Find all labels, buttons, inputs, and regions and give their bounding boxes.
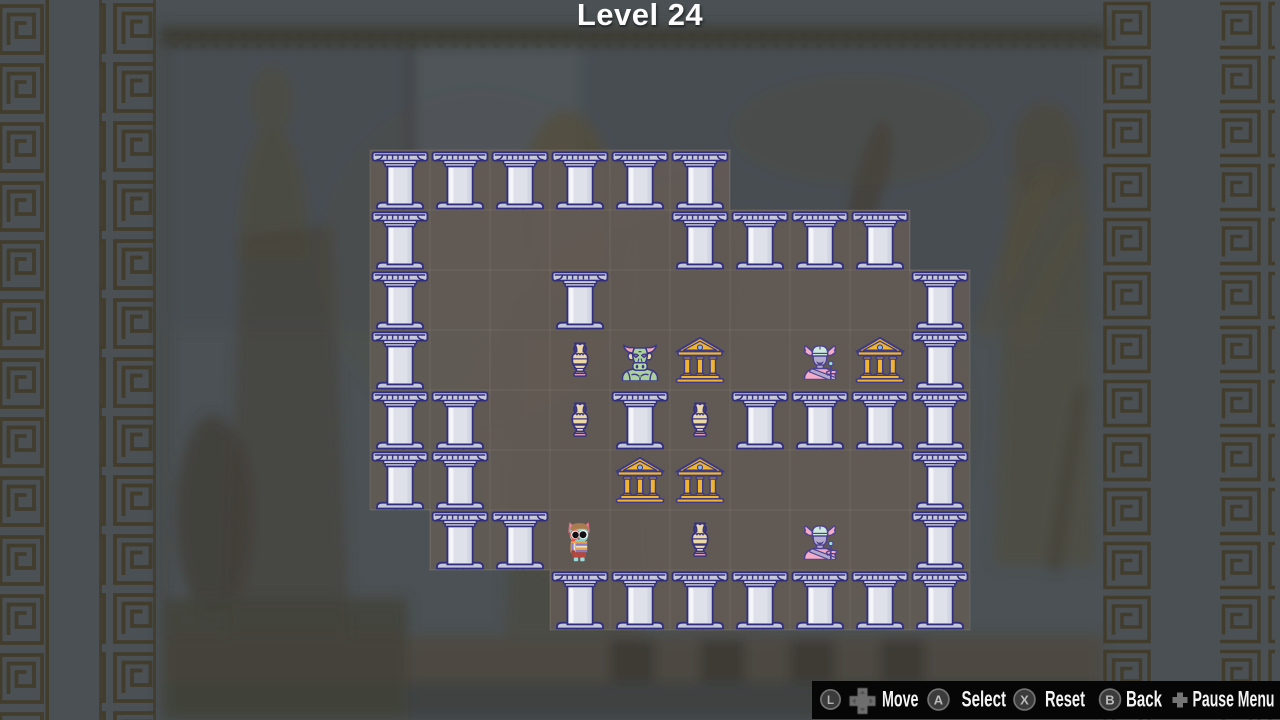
- svg-text:X: X: [1020, 693, 1029, 708]
- svg-text:Select: Select: [962, 687, 1007, 712]
- svg-text:A: A: [934, 693, 944, 708]
- svg-text:Reset: Reset: [1045, 687, 1085, 712]
- svg-text:Back: Back: [1126, 687, 1162, 712]
- svg-text:Move: Move: [882, 687, 919, 712]
- svg-text:Pause Menu: Pause Menu: [1193, 687, 1275, 712]
- svg-text:B: B: [1105, 693, 1114, 708]
- svg-text:L: L: [827, 695, 834, 707]
